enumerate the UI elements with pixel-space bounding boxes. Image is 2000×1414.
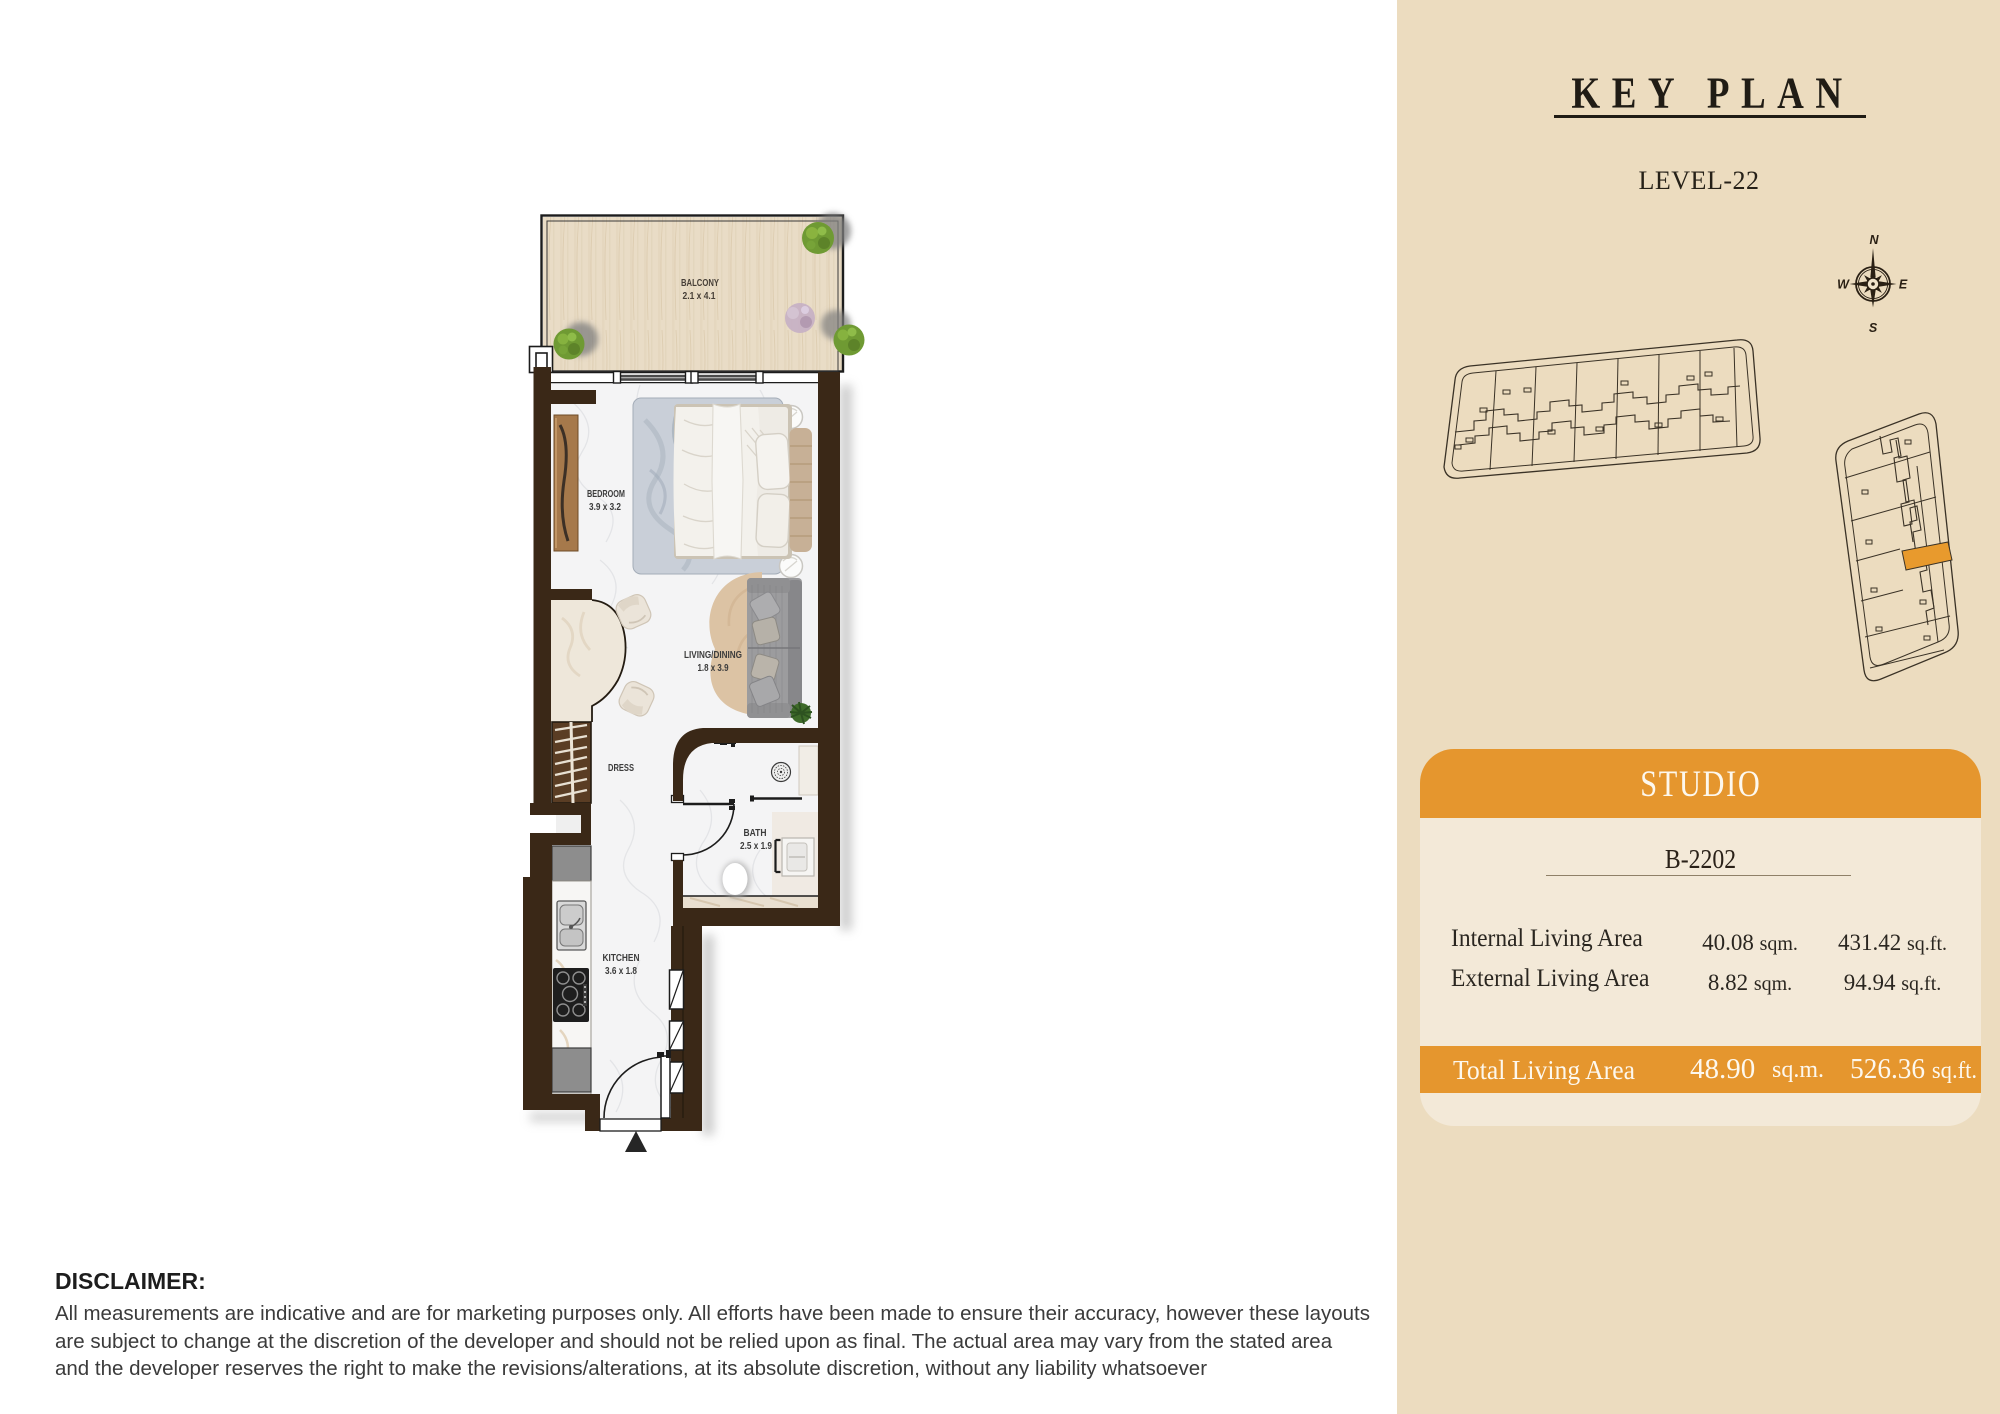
svg-text:KITCHEN: KITCHEN [603, 952, 640, 964]
svg-text:E: E [1899, 278, 1908, 292]
svg-text:1.8 x 3.9: 1.8 x 3.9 [698, 662, 729, 674]
svg-text:2.5 x 1.9: 2.5 x 1.9 [740, 840, 772, 852]
svg-text:BEDROOM: BEDROOM [587, 488, 625, 500]
svg-text:LIVING/DINING: LIVING/DINING [684, 649, 742, 661]
svg-text:BATH: BATH [744, 827, 767, 839]
svg-text:W: W [1837, 278, 1850, 292]
svg-text:2.1 x 4.1: 2.1 x 4.1 [683, 290, 716, 302]
svg-text:3.6 x 1.8: 3.6 x 1.8 [605, 965, 637, 977]
svg-text:DRESS: DRESS [608, 762, 634, 774]
svg-text:N: N [1869, 234, 1879, 247]
svg-text:3.9 x 3.2: 3.9 x 3.2 [589, 501, 621, 513]
svg-text:S: S [1869, 321, 1878, 334]
svg-text:BALCONY: BALCONY [681, 277, 719, 289]
